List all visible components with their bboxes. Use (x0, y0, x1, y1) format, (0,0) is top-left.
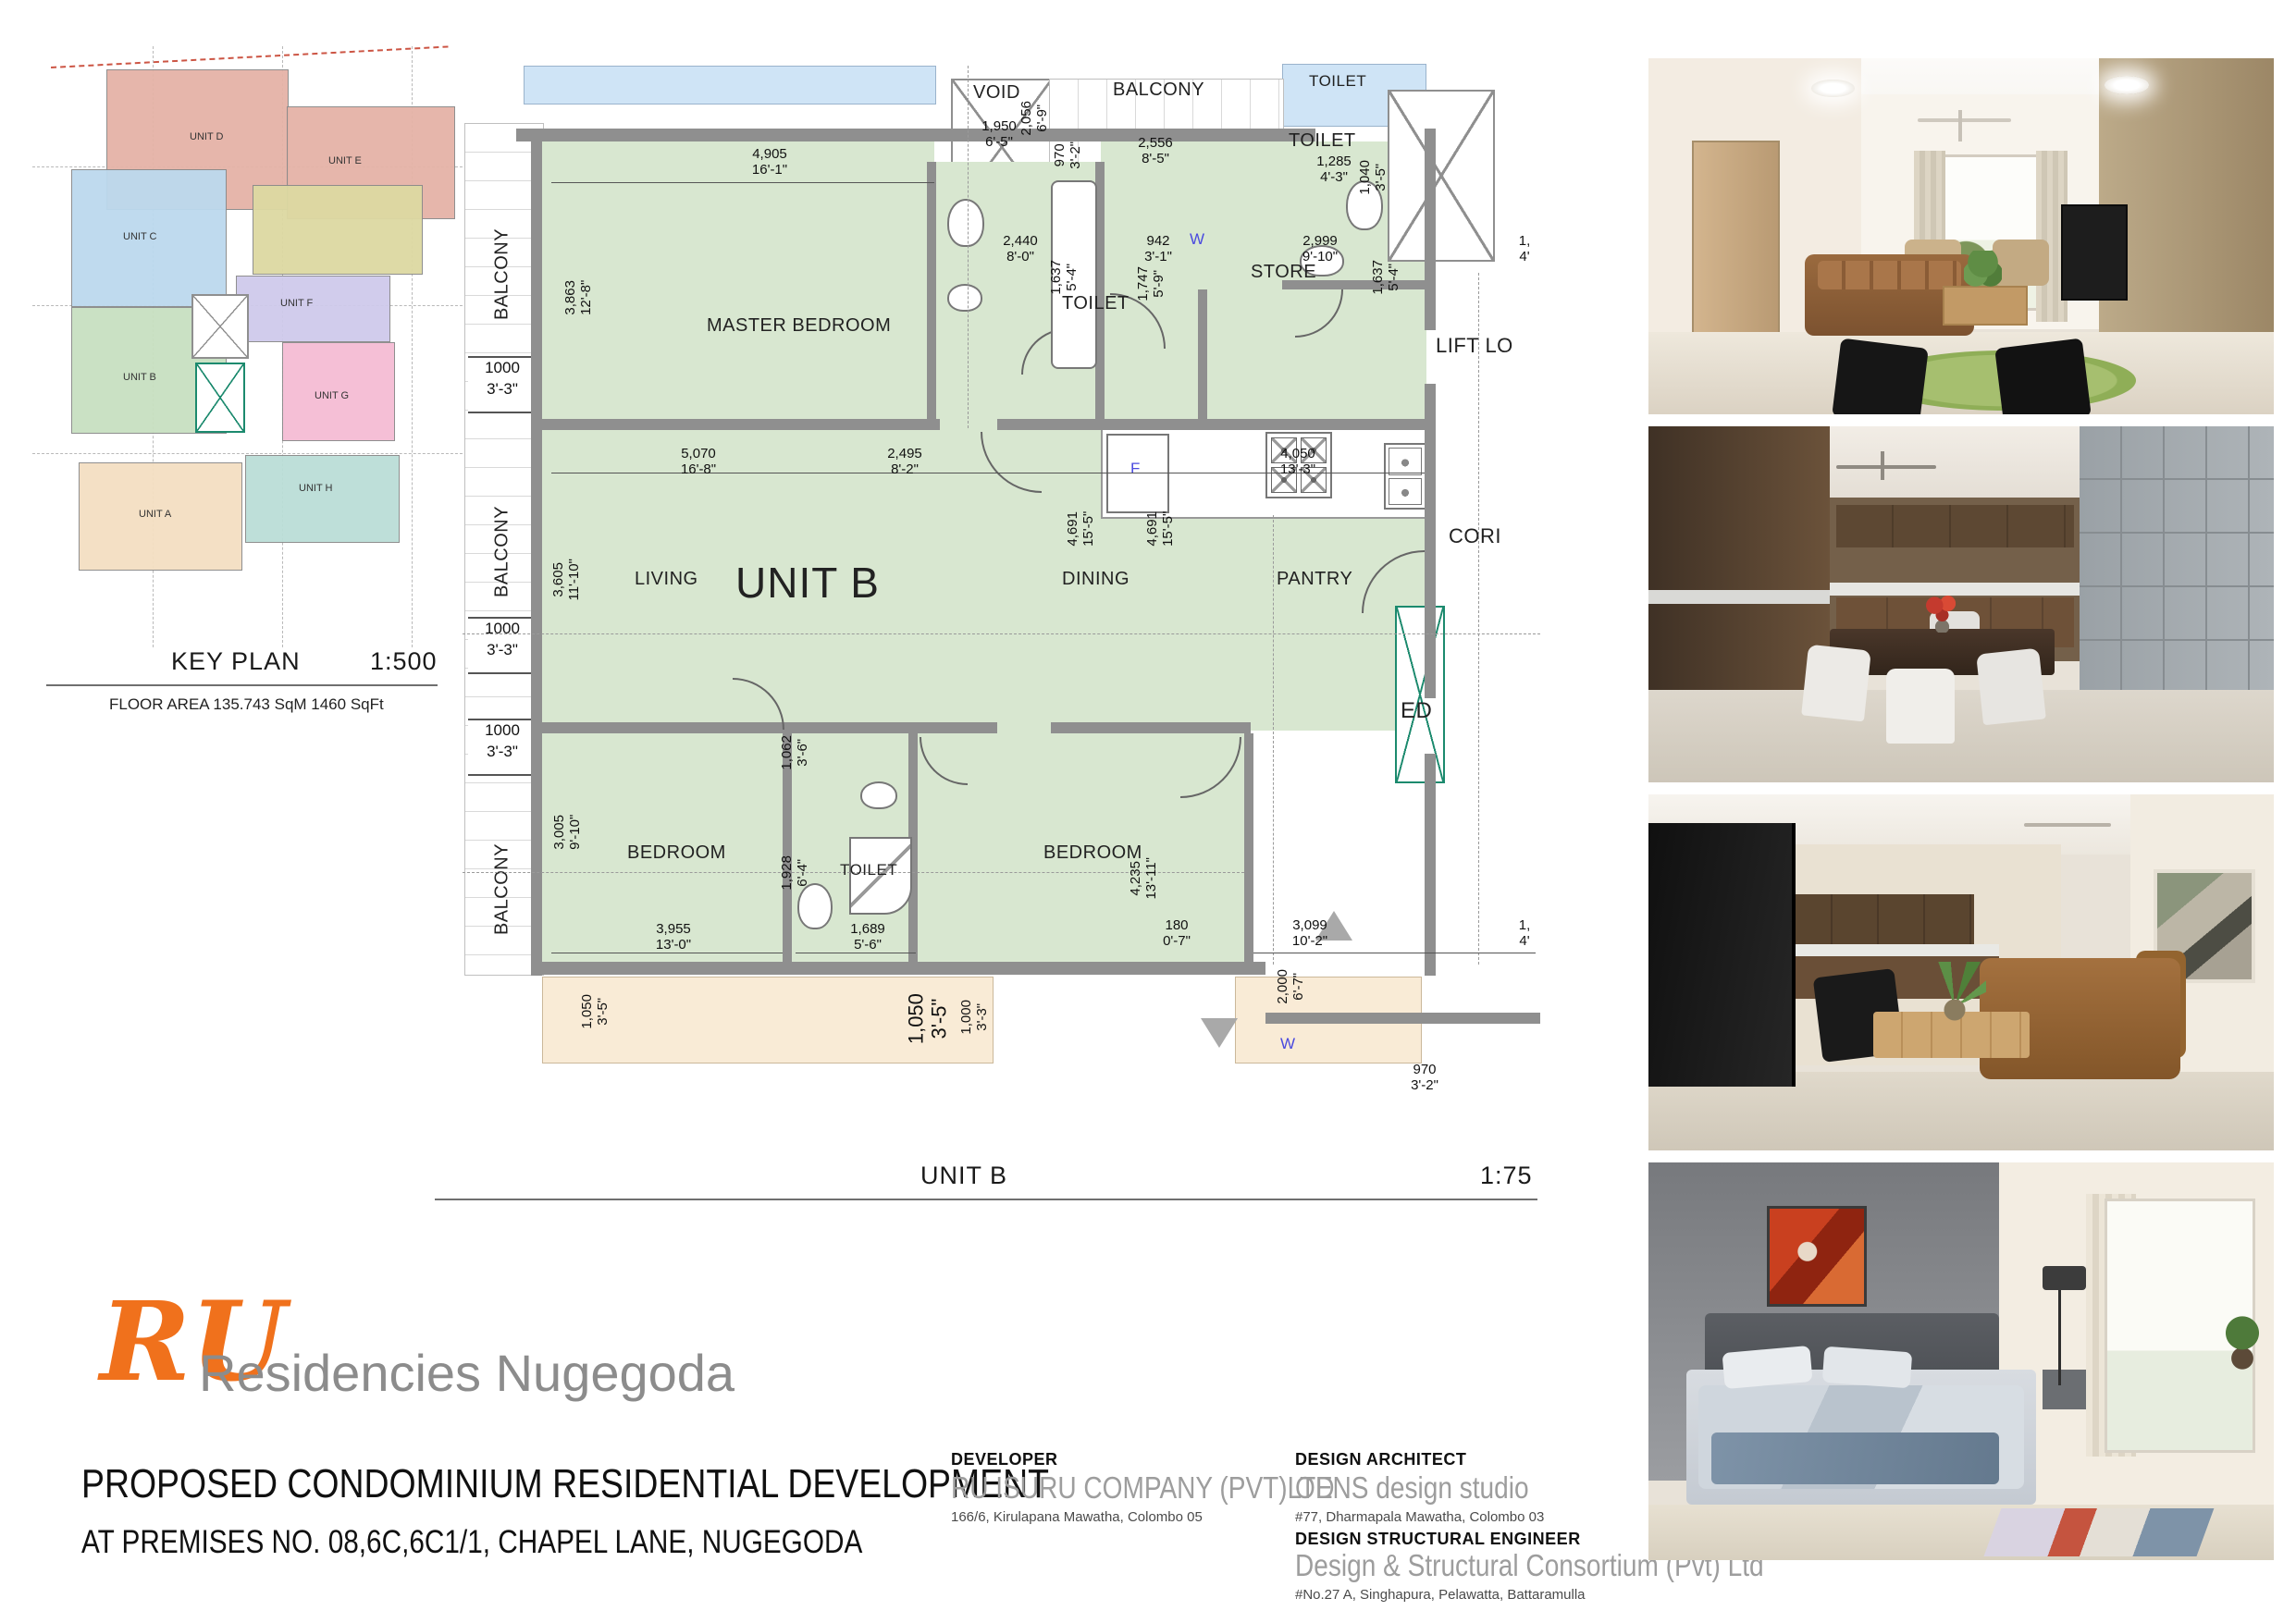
key-unit-d-label: UNIT D (190, 131, 223, 142)
wall (1425, 754, 1436, 976)
wall (531, 962, 1265, 975)
interior-render-kitchen-dining (1648, 426, 2274, 782)
wall (927, 162, 936, 430)
dim-balc-h: 9703'-2" (1053, 125, 1084, 186)
double-sink-icon (1384, 443, 1426, 510)
key-plan: UNIT D UNIT E UNIT C UNIT F UNIT B UNIT … (51, 55, 463, 647)
wall (1244, 733, 1253, 965)
developer-address: 166/6, Kirulapana Mawatha, Colombo 05 (951, 1509, 1203, 1525)
key-unit-h-block (245, 455, 400, 543)
balcony-dim-2: 10003'-3" (468, 617, 537, 674)
dim-corridor-h: 2,0006'-7" (1276, 952, 1307, 1022)
dim-clipped-2: 1,4' (1506, 918, 1543, 950)
dim-dining-h2: 4,69115'-5" (1145, 489, 1177, 569)
tv (2061, 204, 2128, 301)
living-label: LIVING (635, 569, 698, 590)
centerline (1273, 515, 1274, 965)
dim-1050-right: 1,0503'-5" (905, 968, 950, 1070)
wall (531, 129, 542, 976)
wall (1198, 289, 1207, 428)
wall (1425, 129, 1436, 330)
dim-line (551, 182, 934, 183)
balcony-label-2: BALCONY (492, 501, 513, 603)
interior-render-bedroom (1648, 1162, 2274, 1560)
wall-art (1767, 1206, 1866, 1307)
dim-balc-w: 2,5568'-5" (1105, 136, 1206, 167)
dim-toiletb-w: 1,6895'-6" (820, 922, 916, 953)
plan-rule (435, 1199, 1537, 1200)
key-unit-g-label: UNIT G (315, 390, 349, 401)
balcony-dim-1: 10003'-3" (468, 356, 537, 413)
developer-name: RU ISURU COMPANY (PVT)LTD (951, 1470, 1335, 1506)
corridor-label: CORI (1449, 524, 1501, 548)
wall (1425, 384, 1436, 698)
dim-store-w: 2,9999'-10" (1269, 234, 1371, 265)
dim-passage-h: 1,7475'-9" (1136, 248, 1167, 320)
dim-toilet-ur-h: 1,0403'-5" (1358, 147, 1389, 208)
key-unit-b-label: UNIT B (123, 372, 156, 383)
pantry-label: PANTRY (1277, 569, 1352, 590)
dim-bedr-h: 4,23513'-11" (1129, 837, 1160, 920)
bedroom-left-label: BEDROOM (627, 842, 726, 864)
sink-icon (947, 284, 982, 312)
lift-lobby-label: LIFT LO (1436, 334, 1513, 358)
dim-toiletb-h: 1,9286'-4" (780, 838, 811, 908)
adjacent-unit-strip (524, 66, 936, 105)
dim-pantry-w: 4,05013'-3" (1228, 447, 1367, 478)
washer-label-2: W (1280, 1035, 1296, 1053)
project-title: PROPOSED CONDOMINIUM RESIDENTIAL DEVELOP… (81, 1461, 1049, 1507)
dim-clipped-1: 1,4' (1506, 234, 1543, 265)
interior-render-living (1648, 58, 2274, 414)
key-unit-h-label: UNIT H (299, 483, 332, 494)
key-unit-e-label: UNIT E (328, 155, 362, 166)
dim-master-h: 3,86312'-8" (563, 261, 595, 335)
balcony-dim-3: 10003'-3" (468, 719, 537, 776)
door (1692, 141, 1780, 354)
dim-store-h: 1,6375'-4" (1371, 241, 1402, 314)
dim-hall-h: 1,0623'-6" (780, 718, 811, 788)
key-lift-core (191, 294, 249, 359)
key-grid-line (32, 453, 467, 454)
key-unit-c-label: UNIT C (123, 231, 156, 242)
top-balcony-label-1: BALCONY (1113, 80, 1204, 101)
architect-name: OENS design studio (1295, 1470, 1529, 1506)
architect-address: #77, Dharmapala Mawatha, Colombo 03 (1295, 1509, 1544, 1525)
dim-master-w: 4,90516'-1" (705, 147, 834, 178)
dim-bedl-w: 3,95513'-0" (609, 922, 738, 953)
key-unit-f-block (236, 276, 390, 342)
dim-180: 1800'-7" (1149, 918, 1204, 950)
engineer-heading: DESIGN STRUCTURAL ENGINEER (1295, 1530, 1581, 1549)
wall (531, 419, 940, 430)
key-lift-core-2 (195, 363, 245, 433)
floor-area-note: FLOOR AREA 135.743 SqM 1460 SqFt (109, 695, 384, 714)
master-bedroom-label: MASTER BEDROOM (707, 315, 891, 337)
key-unit-f-label: UNIT F (280, 298, 313, 309)
toilet-upper-label: TOILET (1289, 130, 1356, 152)
key-unit-e-block (253, 185, 423, 275)
stair-arrow-down (1201, 1018, 1238, 1048)
dim-970-bottom: 9703'-2" (1388, 1063, 1462, 1094)
architect-heading: DESIGN ARCHITECT (1295, 1450, 1466, 1469)
master-bedroom-area (542, 141, 934, 430)
void-label: VOID (973, 82, 1020, 104)
balcony-label-3: BALCONY (492, 839, 513, 941)
brand-name: Residencies Nugegoda (199, 1343, 734, 1403)
wall (1101, 419, 1426, 430)
unit-b-label: UNIT B (735, 558, 880, 608)
dim-toilet-m-h: 1,6375'-4" (1049, 241, 1080, 314)
dim-bedl-h: 3,0059'-10" (552, 795, 584, 869)
ed-label: ED (1401, 698, 1432, 724)
balcony-label-1: BALCONY (492, 224, 513, 326)
dim-living-w: 5,07016'-8" (629, 447, 768, 478)
dining-label: DINING (1062, 569, 1129, 590)
project-address: AT PREMISES NO. 08,6C,6C1/1, CHAPEL LANE… (81, 1524, 862, 1561)
dim-1000-right: 1,0003'-3" (959, 982, 991, 1052)
fridge-label: F (1130, 460, 1141, 478)
engineer-address: #No.27 A, Singhapura, Pelawatta, Battara… (1295, 1587, 1586, 1603)
dim-dining-h1: 4,69115'-5" (1066, 489, 1097, 569)
key-plan-scale: 1:500 (370, 647, 438, 676)
dim-corridor-w: 3,09910'-2" (1254, 918, 1365, 950)
key-plan-rule (46, 684, 438, 686)
key-plan-title: KEY PLAN (171, 647, 301, 676)
centerline (463, 633, 1540, 634)
dim-1050-left: 1,0503'-5" (580, 977, 611, 1047)
dim-living-h: 3,60511'-10" (551, 538, 583, 621)
interior-render-tv-lounge (1648, 794, 2274, 1150)
wall (1051, 722, 1251, 733)
unit-b-floor-plan: BALCONY BALCONY BALCONY 10003'-3" 10003'… (463, 51, 1540, 1105)
corridor-dashed-line (1478, 273, 1479, 965)
plan-scale: 1:75 (1480, 1162, 1533, 1190)
developer-heading: DEVELOPER (951, 1450, 1058, 1469)
dim-void-h: 2,0566'-9" (1019, 82, 1051, 154)
toilet-bottom-label: TOILET (840, 861, 897, 879)
dim-dining-w: 2,4958'-2" (840, 447, 969, 478)
ed-shaft (1395, 606, 1445, 783)
key-unit-a-label: UNIT A (139, 509, 171, 520)
key-plan-boundary-line (51, 45, 449, 68)
plan-caption: UNIT B (920, 1162, 1007, 1190)
lift-shaft (1388, 90, 1495, 262)
adjacent-toilet-label: TOILET (1309, 72, 1366, 91)
wall (997, 419, 1101, 430)
tv (1648, 823, 1796, 1087)
sink-icon (860, 781, 897, 809)
